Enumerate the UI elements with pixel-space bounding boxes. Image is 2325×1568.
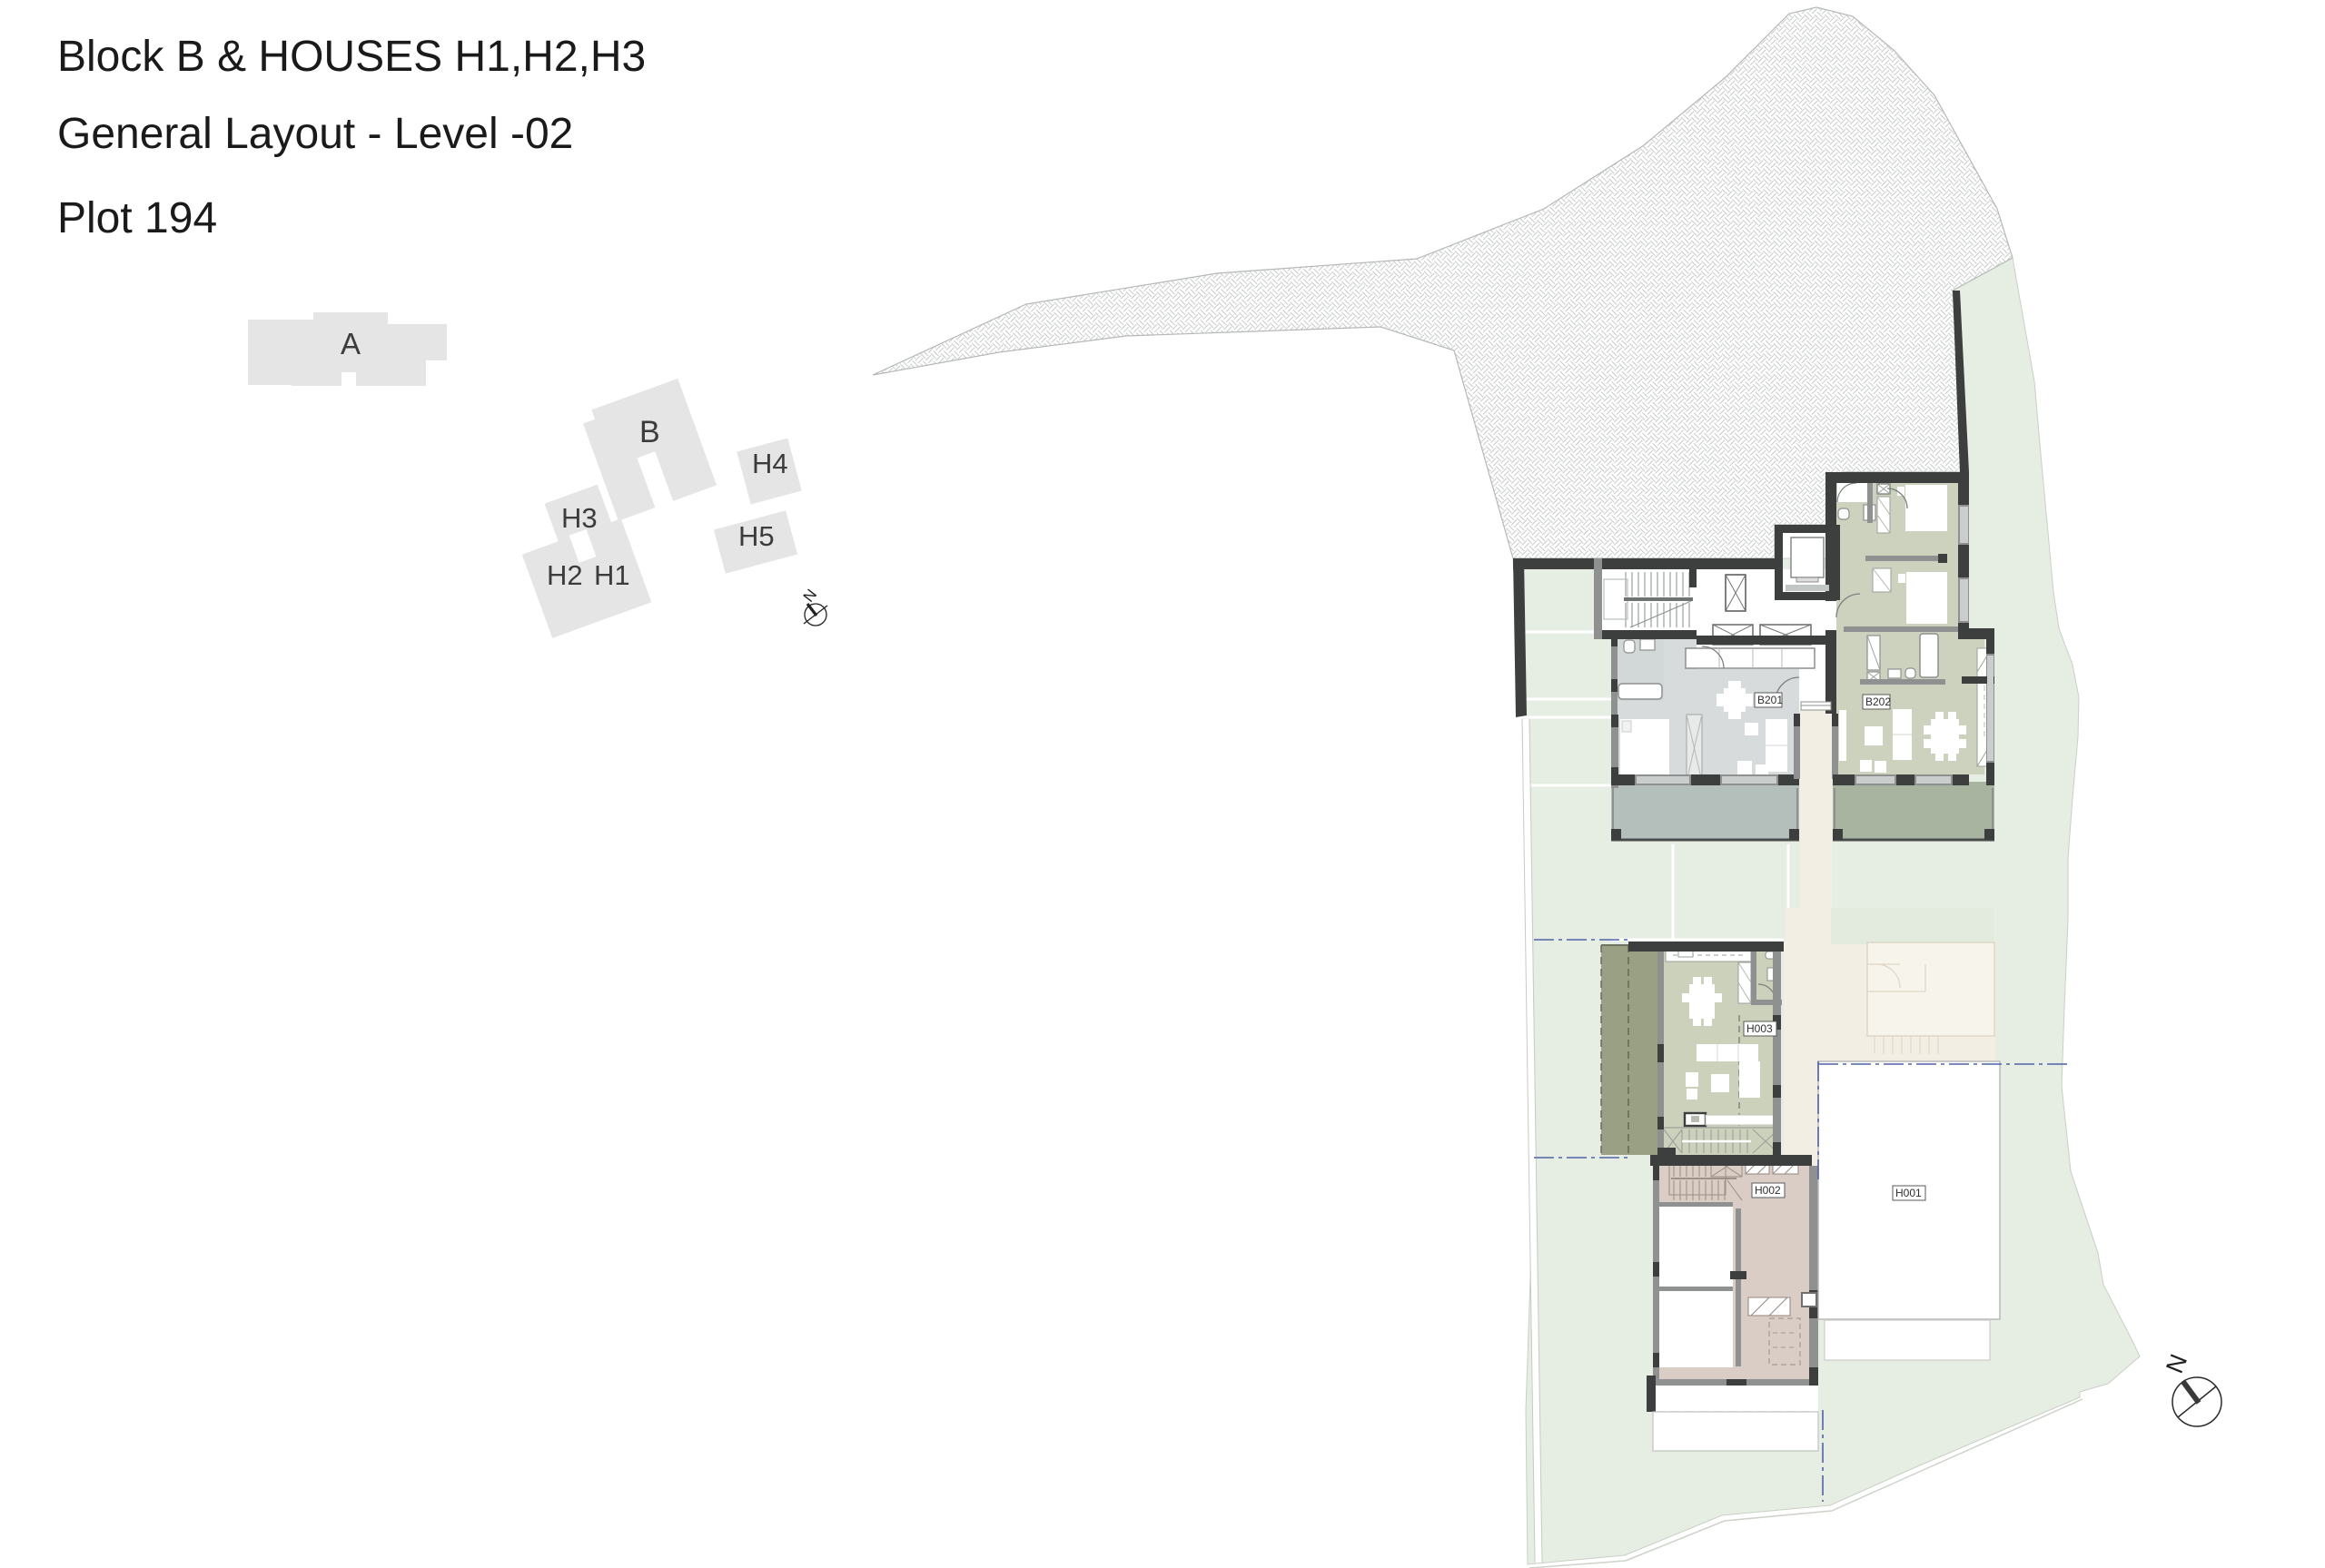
svg-text:H4: H4 xyxy=(752,448,788,479)
svg-text:H002: H002 xyxy=(1755,1184,1781,1197)
svg-text:H1: H1 xyxy=(594,559,630,591)
svg-text:B201: B201 xyxy=(1757,694,1783,706)
svg-text:Block B & HOUSES H1,H2,H3: Block B & HOUSES H1,H2,H3 xyxy=(57,33,646,81)
svg-text:H5: H5 xyxy=(738,520,775,552)
svg-text:H3: H3 xyxy=(561,502,598,534)
svg-text:H2: H2 xyxy=(547,559,583,591)
svg-text:H001: H001 xyxy=(1895,1187,1922,1199)
svg-text:B: B xyxy=(639,415,660,449)
svg-text:General Layout - Level -02: General Layout - Level -02 xyxy=(57,110,573,158)
svg-text:Plot 194: Plot 194 xyxy=(57,194,217,242)
svg-text:H003: H003 xyxy=(1746,1022,1773,1035)
svg-text:B202: B202 xyxy=(1865,695,1891,708)
svg-text:A: A xyxy=(341,327,361,360)
